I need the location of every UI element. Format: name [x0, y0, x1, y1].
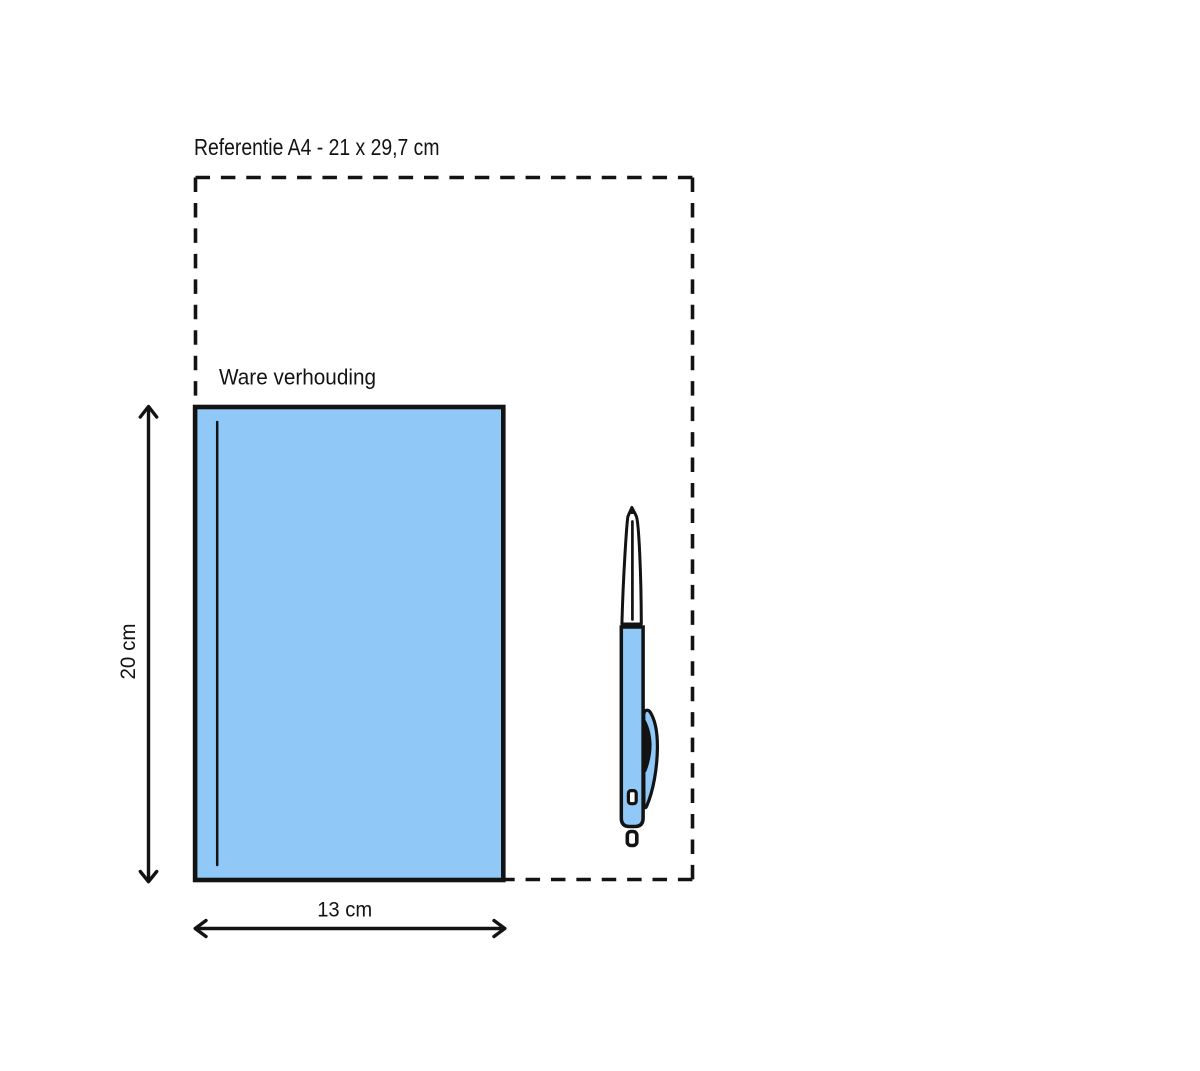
svg-text:Ware verhouding: Ware verhouding	[219, 364, 376, 389]
svg-text:Referentie A4 - 21 x 29,7 cm: Referentie A4 - 21 x 29,7 cm	[194, 134, 440, 160]
svg-text:20 cm: 20 cm	[116, 624, 140, 680]
svg-text:13 cm: 13 cm	[317, 898, 372, 922]
